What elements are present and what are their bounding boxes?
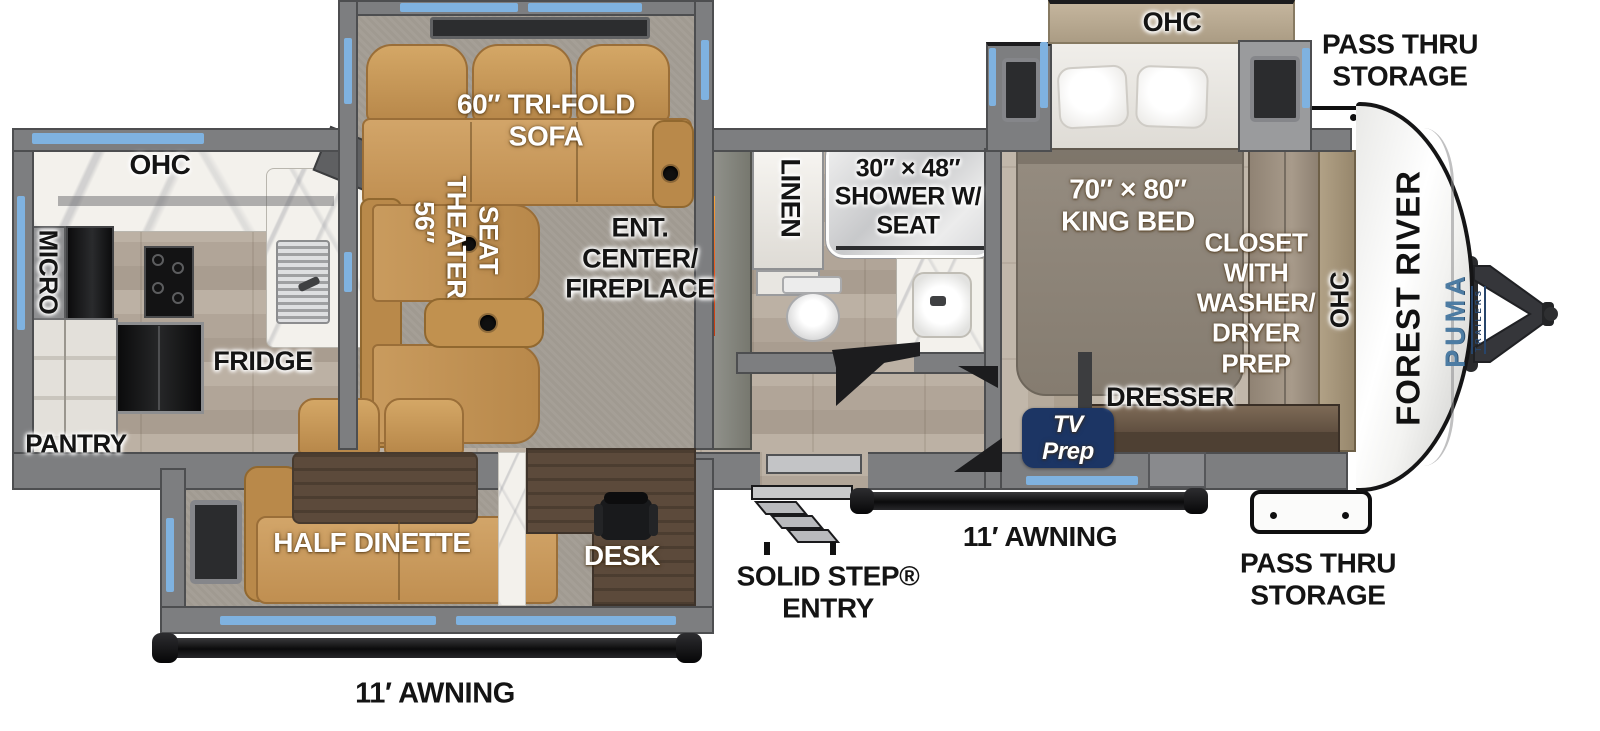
label-king-bed: 70″ × 80″ KING BED (1061, 173, 1195, 236)
awning-tube-right (854, 492, 1206, 510)
label-tri-fold-sofa: 60″ TRI-FOLD SOFA (457, 88, 635, 151)
kitchen-window-accent (32, 133, 204, 144)
cup-holder (480, 315, 496, 331)
dinette-slide-window (190, 500, 242, 584)
cooktop-burner (152, 282, 164, 294)
awning-tube-left (158, 638, 702, 658)
floorplan-canvas: OHC MICRO FRIDGE PANTRY 60″ TRI-FOLD SOF… (0, 0, 1600, 731)
puma-logo-subtext: TRAILERS (1471, 286, 1486, 354)
bed-slide-right-window (1250, 56, 1300, 122)
bath-faucet (930, 296, 946, 306)
dinette-table (292, 452, 478, 524)
cooktop-burner (152, 254, 164, 266)
shower-glass (836, 246, 984, 250)
bed-slide-accent-left (1040, 42, 1048, 108)
kitchen-ohc-shelf (58, 196, 334, 206)
pillow (1135, 65, 1209, 129)
label-awning-left: 11′ AWNING (355, 678, 515, 711)
puma-logo: PUMA TRAILERS (1383, 275, 1543, 365)
cooktop-burner (172, 292, 184, 304)
label-theater-seat-word1: THEATER (441, 176, 472, 299)
fridge-divider (158, 326, 160, 410)
awning-right-cap-left (850, 488, 874, 514)
sofa-slide-window-top1 (400, 3, 518, 12)
pass-thru-door-bottom-latch (1342, 512, 1349, 519)
label-pass-thru-bottom: PASS THRU STORAGE (1240, 547, 1396, 610)
sofa-slide-window-top2 (528, 3, 642, 12)
label-pass-thru-top: PASS THRU STORAGE (1322, 28, 1478, 91)
skylight (430, 17, 650, 39)
dinette-slide-left-accent (166, 518, 174, 592)
sofa-slide-window-left2 (344, 252, 352, 292)
label-theater-seat-word2: SEAT (473, 206, 504, 274)
label-ohc-kitchen: OHC (129, 149, 190, 181)
solid-step-stairs (748, 484, 860, 558)
label-dresser: DRESSER (1106, 382, 1234, 413)
door-swing-arc (948, 428, 1008, 478)
bed-slide-accent-right (1302, 48, 1310, 108)
label-ohc-bed-slide: OHC (1143, 7, 1202, 38)
dinette-slide-bottom-accent1 (220, 616, 436, 625)
label-micro: MICRO (33, 230, 62, 315)
bed-slide-left-window (1002, 58, 1040, 122)
label-desk: DESK (584, 540, 660, 572)
pass-thru-door-bottom-latch (1270, 512, 1277, 519)
door-swing-arcs (740, 342, 1010, 442)
label-shower: 30″ × 48″ SHOWER W/ SEAT (835, 155, 981, 240)
sofa-back-cushion (366, 44, 468, 122)
dinette-back-cushion (384, 398, 464, 454)
bedroom-step (1148, 452, 1206, 488)
label-theater-seat-size: 56″ (409, 201, 440, 243)
label-linen: LINEN (775, 158, 806, 237)
desk-chair (600, 498, 652, 540)
cup-holder (663, 166, 678, 181)
label-half-dinette: HALF DINETTE (273, 527, 470, 559)
label-closet: CLOSET WITH WASHER/ DRYER PREP (1197, 228, 1316, 379)
toilet-bowl (786, 292, 840, 342)
awning-cap-right (676, 633, 702, 663)
awning-cap-left (152, 633, 178, 663)
awning-right-cap-right (1184, 488, 1208, 514)
sofa-slide-window-left1 (344, 38, 352, 104)
entry-threshold (766, 454, 862, 474)
desk-chair-back (604, 492, 648, 504)
sofa-slide-window-right (701, 40, 709, 100)
sofa-armrest (652, 120, 694, 208)
dinette-slide-bottom-accent2 (456, 616, 676, 625)
bottom-window-accent (1026, 476, 1138, 485)
pass-thru-door-bottom (1250, 490, 1372, 534)
label-ent-center: ENT. CENTER/ FIREPLACE (565, 212, 714, 304)
label-ohc-front: OHC (1325, 272, 1354, 329)
dinette-slide-right-wall (694, 458, 714, 630)
desk-chair-arm (649, 504, 658, 536)
puma-logo-text: PUMA (1440, 272, 1471, 368)
cooktop-burner (172, 262, 184, 274)
label-awning-right: 11′ AWNING (963, 521, 1117, 553)
label-pantry: PANTRY (25, 429, 127, 458)
sofa-slide-top-wall (338, 0, 714, 16)
label-tv-prep: TV Prep (1042, 411, 1094, 465)
top-wall-bath (704, 128, 1002, 152)
desk-divider (498, 452, 526, 606)
oven (66, 226, 114, 322)
top-wall-front (1308, 128, 1352, 152)
rear-window-accent (17, 196, 25, 330)
pillow (1056, 64, 1129, 130)
label-fridge: FRIDGE (213, 346, 313, 377)
desk-chair-arm (594, 504, 603, 536)
bed-slide-left-accent (989, 48, 996, 106)
label-solid-step-entry: SOLID STEP® ENTRY (737, 560, 920, 623)
